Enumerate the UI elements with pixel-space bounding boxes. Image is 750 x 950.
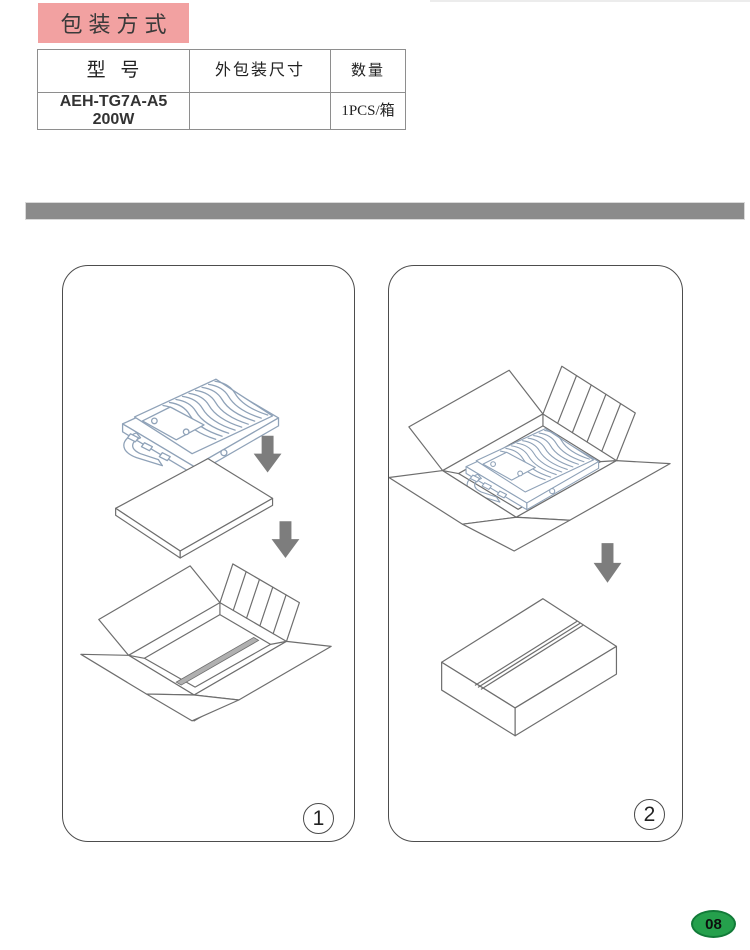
model-line2: 200W xyxy=(93,111,135,129)
open-box-with-light-drawing xyxy=(389,366,670,551)
page-number-badge: 08 xyxy=(691,910,736,938)
down-arrow-icon xyxy=(594,543,622,583)
table-header-quantity: 数量 xyxy=(331,50,405,92)
table-cell-outer-size xyxy=(190,93,330,129)
table-cell-model: AEH-TG7A-A5 200W xyxy=(38,93,189,129)
step-number-badge: 2 xyxy=(634,799,665,830)
packing-step-1-diagram xyxy=(63,266,354,841)
closed-box-drawing xyxy=(442,599,617,736)
packing-step-2-panel: 2 xyxy=(388,265,683,842)
down-arrow-icon xyxy=(272,521,300,558)
packing-step-2-diagram xyxy=(389,266,682,841)
foam-sheet-drawing xyxy=(116,459,273,558)
open-box-drawing xyxy=(81,564,331,721)
table-header-outer-size: 外包装尺寸 xyxy=(190,50,330,92)
table-cell-quantity: 1PCS/箱 xyxy=(331,93,405,129)
top-edge-line xyxy=(430,0,750,2)
packing-table: 型 号 外包装尺寸 数量 AEH-TG7A-A5 200W 1PCS/箱 xyxy=(37,49,406,130)
section-divider-bar xyxy=(26,203,744,219)
model-line1: AEH-TG7A-A5 xyxy=(60,93,168,111)
page-title: 包装方式 xyxy=(38,3,189,43)
table-header-model: 型 号 xyxy=(38,50,189,92)
step-number-badge: 1 xyxy=(303,803,334,834)
packing-step-1-panel: 1 xyxy=(62,265,355,842)
down-arrow-icon xyxy=(254,436,282,473)
